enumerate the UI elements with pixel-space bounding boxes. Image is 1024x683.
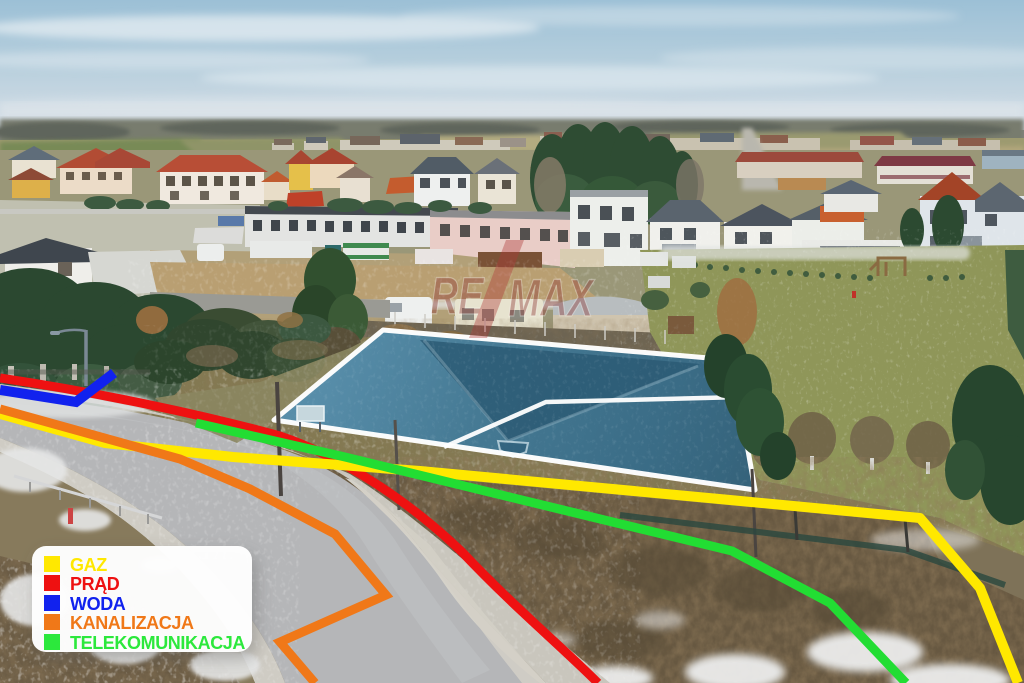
svg-text:GAZ: GAZ <box>70 555 107 575</box>
svg-text:RE: RE <box>431 266 485 326</box>
svg-text:MAX: MAX <box>508 268 595 328</box>
svg-text:PRĄD: PRĄD <box>70 574 120 594</box>
svg-text:TELEKOMUNIKACJA: TELEKOMUNIKACJA <box>70 633 245 653</box>
svg-text:KANALIZACJA: KANALIZACJA <box>70 613 194 633</box>
svg-text:WODA: WODA <box>70 594 126 614</box>
